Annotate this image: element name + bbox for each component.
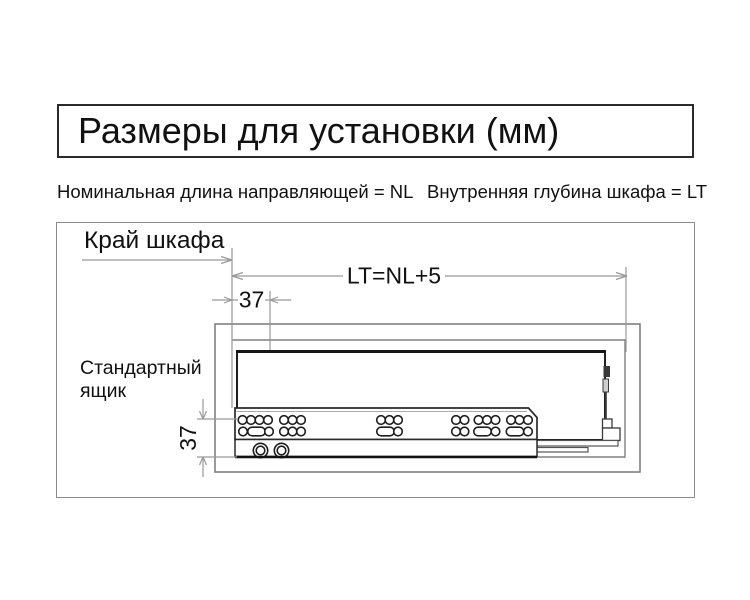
bottom-offset-label: 37 bbox=[175, 425, 201, 451]
rail-hole bbox=[297, 427, 306, 436]
rail-hole bbox=[264, 416, 273, 425]
rail-rivet-inner bbox=[277, 446, 286, 455]
rail-hole bbox=[238, 416, 247, 425]
rail-hole bbox=[288, 427, 297, 436]
rail-hole bbox=[280, 416, 289, 425]
rail-slot bbox=[377, 427, 395, 436]
rail-slot bbox=[474, 427, 492, 436]
rail-hole bbox=[460, 427, 469, 436]
cabinet-edge-leader bbox=[82, 257, 232, 264]
rail-hole bbox=[524, 416, 533, 425]
rail-hole bbox=[247, 416, 256, 425]
dim-lt: LT=NL+5 bbox=[232, 263, 627, 289]
rail-hole bbox=[524, 427, 533, 436]
rail-hole bbox=[385, 416, 394, 425]
rail-hole bbox=[474, 416, 483, 425]
rail-hole bbox=[394, 427, 403, 436]
front-offset-label: 37 bbox=[239, 287, 265, 313]
rail-hole bbox=[460, 416, 469, 425]
rail-hole bbox=[265, 427, 274, 436]
rail-hole bbox=[491, 427, 500, 436]
rail-slot bbox=[248, 427, 266, 436]
rail-hole bbox=[377, 416, 386, 425]
rail-slot bbox=[506, 427, 524, 436]
rail-hole bbox=[491, 416, 500, 425]
rail-hole bbox=[483, 416, 492, 425]
slide-members bbox=[537, 441, 618, 453]
rail-hole bbox=[452, 416, 461, 425]
rail-hole bbox=[239, 427, 248, 436]
rail-hole bbox=[288, 416, 297, 425]
dim-37-front: 37 bbox=[212, 287, 291, 313]
rail-hole bbox=[255, 416, 264, 425]
rail-hole bbox=[452, 427, 461, 436]
rail-hole bbox=[297, 416, 306, 425]
dim-37-bottom: 37 bbox=[175, 399, 237, 477]
rail-hole bbox=[280, 427, 289, 436]
rail-hole bbox=[507, 416, 516, 425]
rail-hole bbox=[394, 416, 403, 425]
technical-drawing: LT=NL+5 37 bbox=[0, 0, 750, 600]
rail-hole bbox=[515, 416, 524, 425]
rail-rivet-inner bbox=[256, 446, 265, 455]
lt-dim-label: LT=NL+5 bbox=[347, 263, 441, 289]
